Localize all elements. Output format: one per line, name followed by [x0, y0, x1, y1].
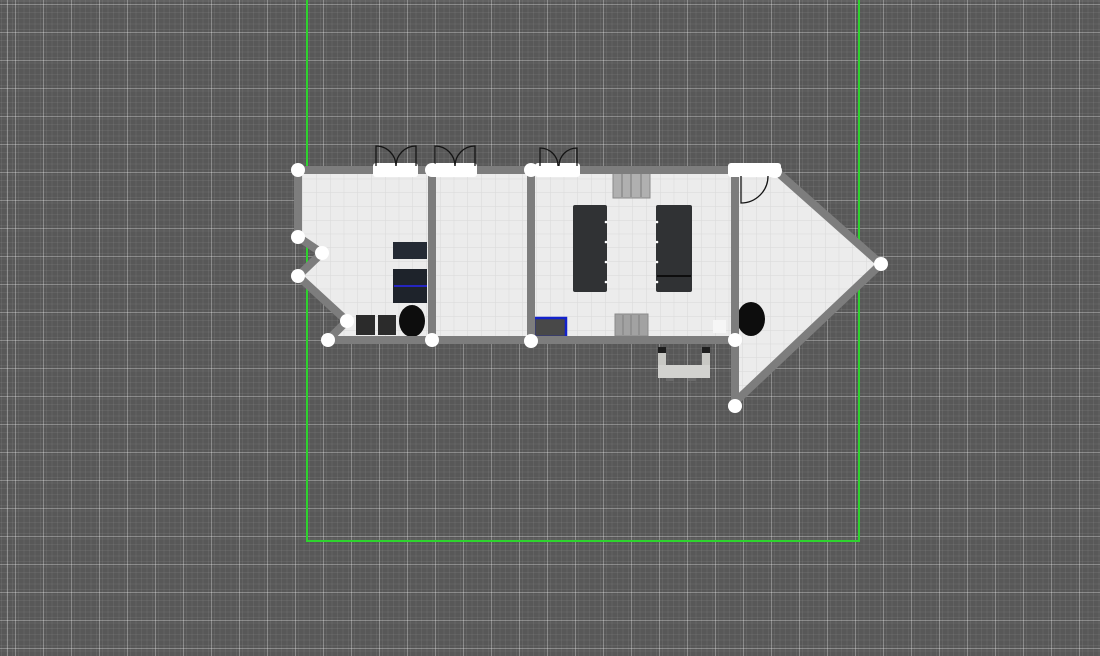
wall-vertex-handle-4[interactable]	[291, 269, 305, 283]
wall-vertex-handle-7[interactable]	[425, 163, 439, 177]
round-table-left[interactable]	[399, 305, 425, 337]
locker-1[interactable]	[356, 315, 375, 335]
white-box[interactable]	[713, 320, 726, 333]
chair-dot-5	[656, 221, 659, 224]
floor-plan-canvas[interactable]	[0, 0, 1100, 656]
wall-vertex-handle-2[interactable]	[291, 230, 305, 244]
conference-table-left[interactable]	[573, 205, 607, 292]
wall-vertex-handle-8[interactable]	[425, 333, 439, 347]
wall-vertex-handle-1[interactable]	[291, 163, 305, 177]
wall-vertex-handle-12[interactable]	[768, 164, 782, 178]
locker-2[interactable]	[378, 315, 396, 335]
wall-vertex-handle-11[interactable]	[728, 163, 742, 177]
bench-right-arm-tip[interactable]	[702, 347, 710, 353]
wall-vertex-handle-10[interactable]	[524, 334, 538, 348]
wall-vertex-handle-5[interactable]	[340, 314, 354, 328]
chair-dot-8	[656, 281, 659, 284]
chair-dot-7	[656, 261, 659, 264]
bench-foot-2[interactable]	[688, 378, 696, 381]
round-table-right[interactable]	[737, 302, 765, 336]
selected-furniture-box[interactable]	[534, 318, 566, 337]
cabinet-top[interactable]	[393, 242, 427, 259]
chair-dot-6	[656, 241, 659, 244]
wall-vertex-handle-15[interactable]	[728, 399, 742, 413]
floor-plan-drawing[interactable]	[0, 0, 1100, 656]
chair-dot-3	[605, 261, 608, 264]
wall-vertex-handle-6[interactable]	[321, 333, 335, 347]
chair-dot-1	[605, 221, 608, 224]
wall-vertex-handle-3[interactable]	[315, 246, 329, 260]
bench-foot-1[interactable]	[666, 378, 674, 381]
bench-seat[interactable]	[658, 365, 710, 378]
wall-vertex-handle-13[interactable]	[874, 257, 888, 271]
conference-table-right[interactable]	[656, 205, 692, 292]
wall-vertex-handle-14[interactable]	[728, 333, 742, 347]
chair-dot-4	[605, 281, 608, 284]
bench-left-arm-tip[interactable]	[658, 347, 666, 353]
chair-dot-2	[605, 241, 608, 244]
wall-vertex-handle-9[interactable]	[524, 163, 538, 177]
